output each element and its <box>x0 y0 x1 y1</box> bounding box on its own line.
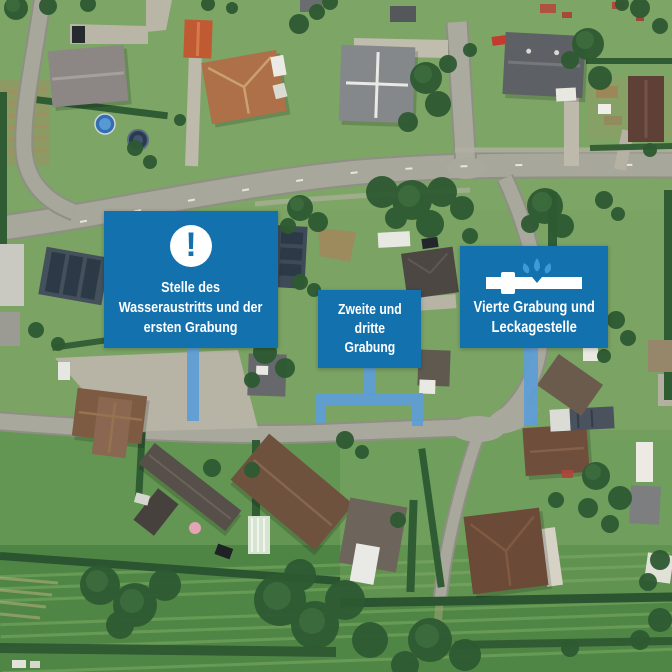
annotated-satellite-map: ! Stelle des Wasseraustritts und der ers… <box>0 0 672 672</box>
callout-text-line: Grabung <box>338 339 402 358</box>
callout-text-line: Stelle des <box>119 278 263 298</box>
callout-text-line: Leckagestelle <box>473 318 594 338</box>
water-droplets <box>523 258 551 274</box>
callout-fourth-dig-text: Vierte Grabung und Leckagestelle <box>462 298 606 338</box>
callout-text-line: ersten Grabung <box>119 318 263 338</box>
callout-first-dig: ! Stelle des Wasseraustritts und der ers… <box>104 211 278 348</box>
exclamation-circle-icon: ! <box>170 225 212 267</box>
callout-2-connector-left-leg <box>315 405 326 423</box>
callout-first-dig-text: Stelle des Wasseraustritts und der erste… <box>105 278 276 338</box>
callout-text-line: Vierte Grabung und <box>473 298 594 318</box>
callout-fourth-dig: Vierte Grabung und Leckagestelle <box>460 246 608 348</box>
callout-text-line: dritte <box>338 320 402 339</box>
callout-2-connector-right-leg <box>412 405 423 426</box>
callout-second-third-dig: Zweite und dritte Grabung <box>318 290 421 368</box>
callout-second-third-dig-text: Zweite und dritte Grabung <box>332 301 408 358</box>
callout-3-connector-line <box>524 346 538 426</box>
pipe-shape <box>486 272 582 294</box>
callout-1-connector-line <box>187 346 199 421</box>
leaking-pipe-icon <box>484 256 584 294</box>
callout-text-line: Zweite und <box>338 301 402 320</box>
callout-2-connector-bar <box>315 393 423 405</box>
callout-2-connector-stem <box>364 366 376 396</box>
callout-text-line: Wasseraustritts und der <box>119 298 263 318</box>
exclamation-glyph: ! <box>185 228 196 262</box>
